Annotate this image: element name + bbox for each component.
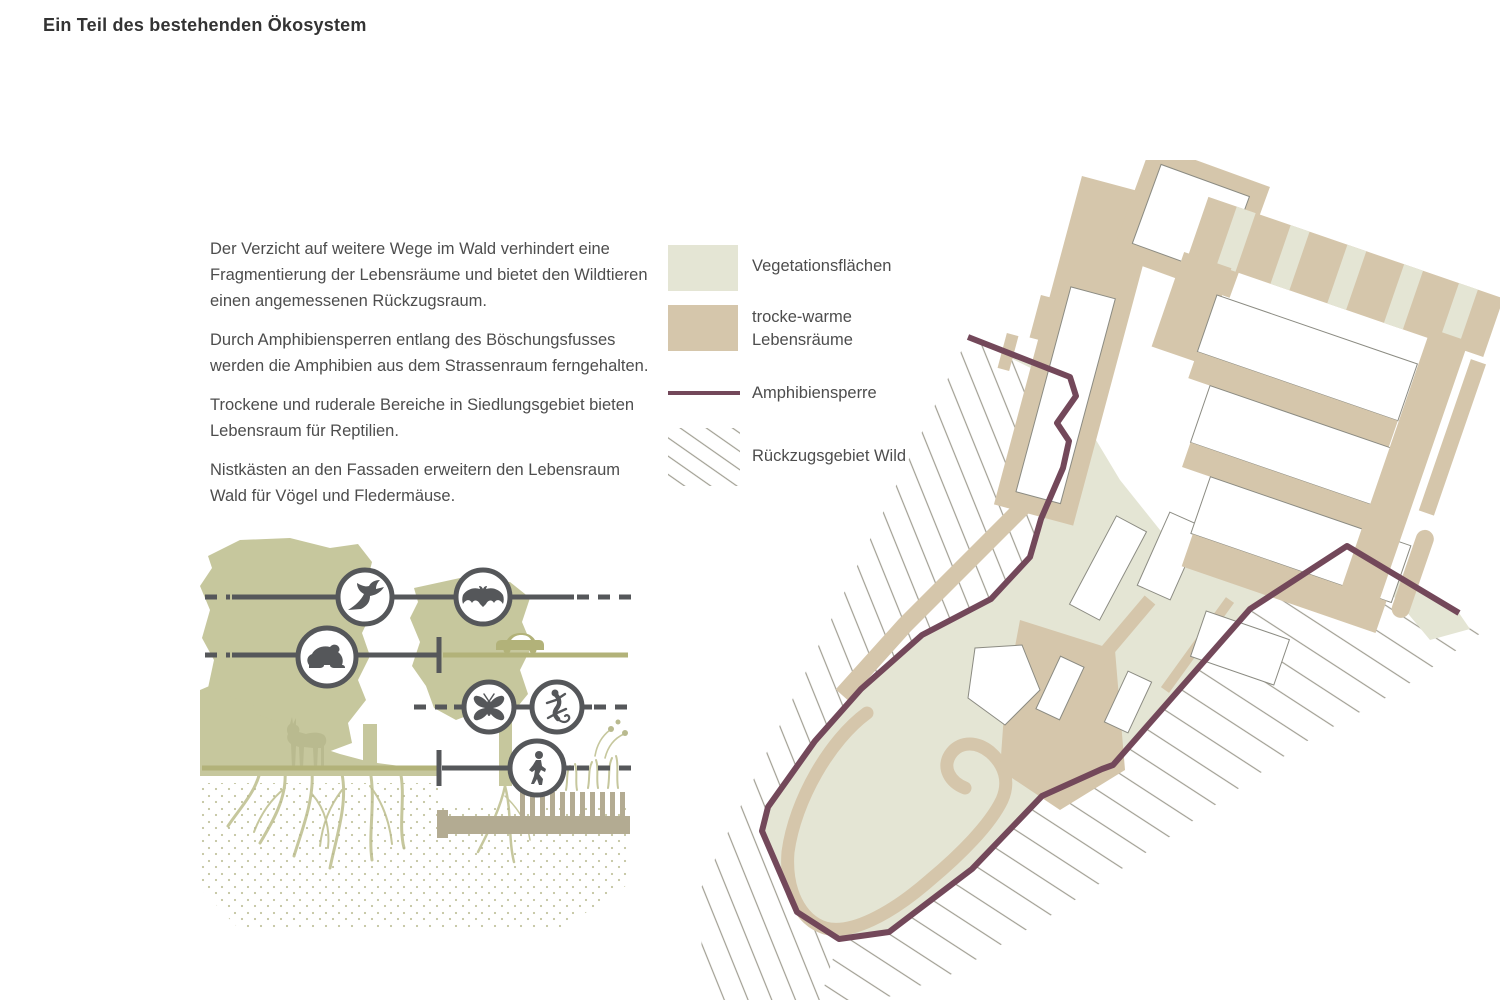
pedestrian-icon <box>510 741 564 795</box>
infographic-page: Ein Teil des bestehenden Ökosystem Der V… <box>0 0 1500 1000</box>
frog-icon <box>298 628 356 686</box>
intro-paragraph: Durch Amphibiensperren entlang des Bösch… <box>210 327 655 379</box>
intro-text: Der Verzicht auf weitere Wege im Wald ve… <box>210 236 655 522</box>
intro-paragraph: Nistkästen an den Fassaden erweitern den… <box>210 457 655 509</box>
lizard-icon <box>532 682 582 732</box>
bird-icon <box>338 570 392 624</box>
intro-paragraph: Trockene und ruderale Bereiche in Siedlu… <box>210 392 655 444</box>
moth-icon <box>464 682 514 732</box>
intro-paragraph: Der Verzicht auf weitere Wege im Wald ve… <box>210 236 655 314</box>
page-title: Ein Teil des bestehenden Ökosystem <box>43 15 367 36</box>
bat-icon <box>456 570 510 624</box>
ecosystem-cross-section <box>200 538 640 938</box>
soil-stipple <box>200 783 630 930</box>
site-plan-map <box>690 160 1500 1000</box>
